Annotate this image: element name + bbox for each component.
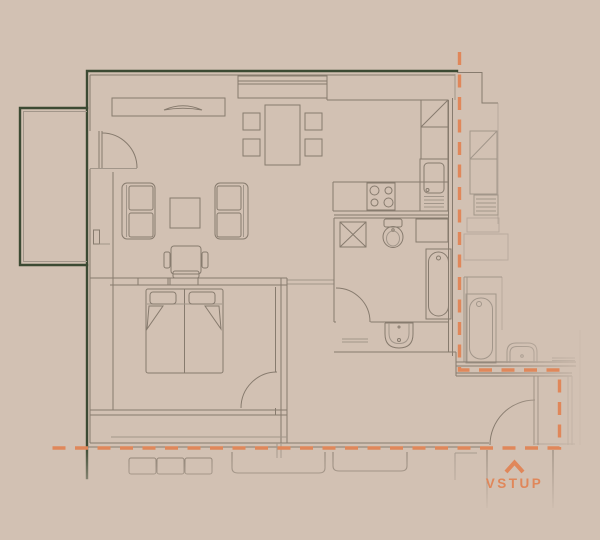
entrance-label: VSTUP (486, 476, 544, 491)
floor-plan-canvas: VSTUP (0, 0, 600, 540)
floor-plan: VSTUP (0, 0, 600, 540)
